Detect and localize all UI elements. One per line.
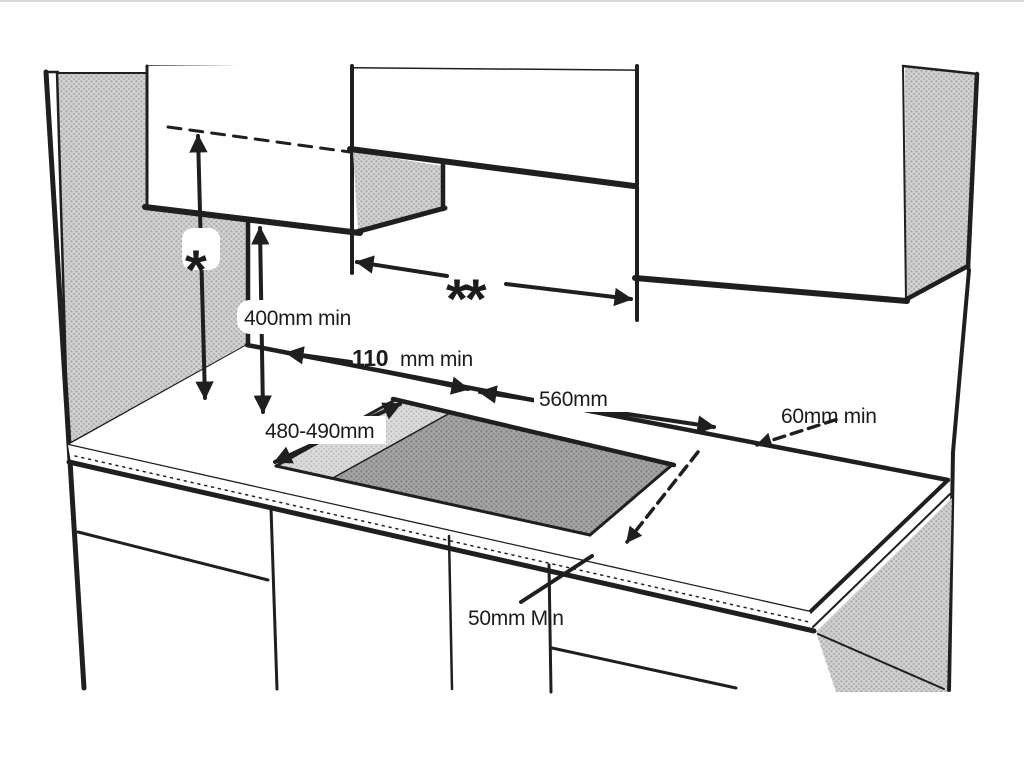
side-clearance-label: 60mm min [781,405,877,428]
cutout-width-label: 560mm [539,388,608,411]
double-star-label: ** [446,267,487,330]
rear-clearance-value-label: 110 [352,345,388,371]
upper-right-cabinet [635,66,978,320]
rear-clearance-unit-label: mm min [400,348,473,371]
star-label: * [185,238,207,301]
diagram-canvas: * 400mm min 110 mm min 560mm 480-490mm 6… [0,0,1024,768]
hood-width-arrow-left [357,262,447,276]
front-clearance-label: 50mm Min [468,607,564,630]
hob-installation-diagram: * 400mm min 110 mm min 560mm 480-490mm 6… [0,0,1024,768]
right-wall-edge [949,270,969,690]
cutout-depth-label: 480-490mm [265,420,374,443]
min-height-label: 400mm min [244,307,351,330]
cooker-hood [350,149,634,232]
hood-width-arrow-right [506,284,631,299]
